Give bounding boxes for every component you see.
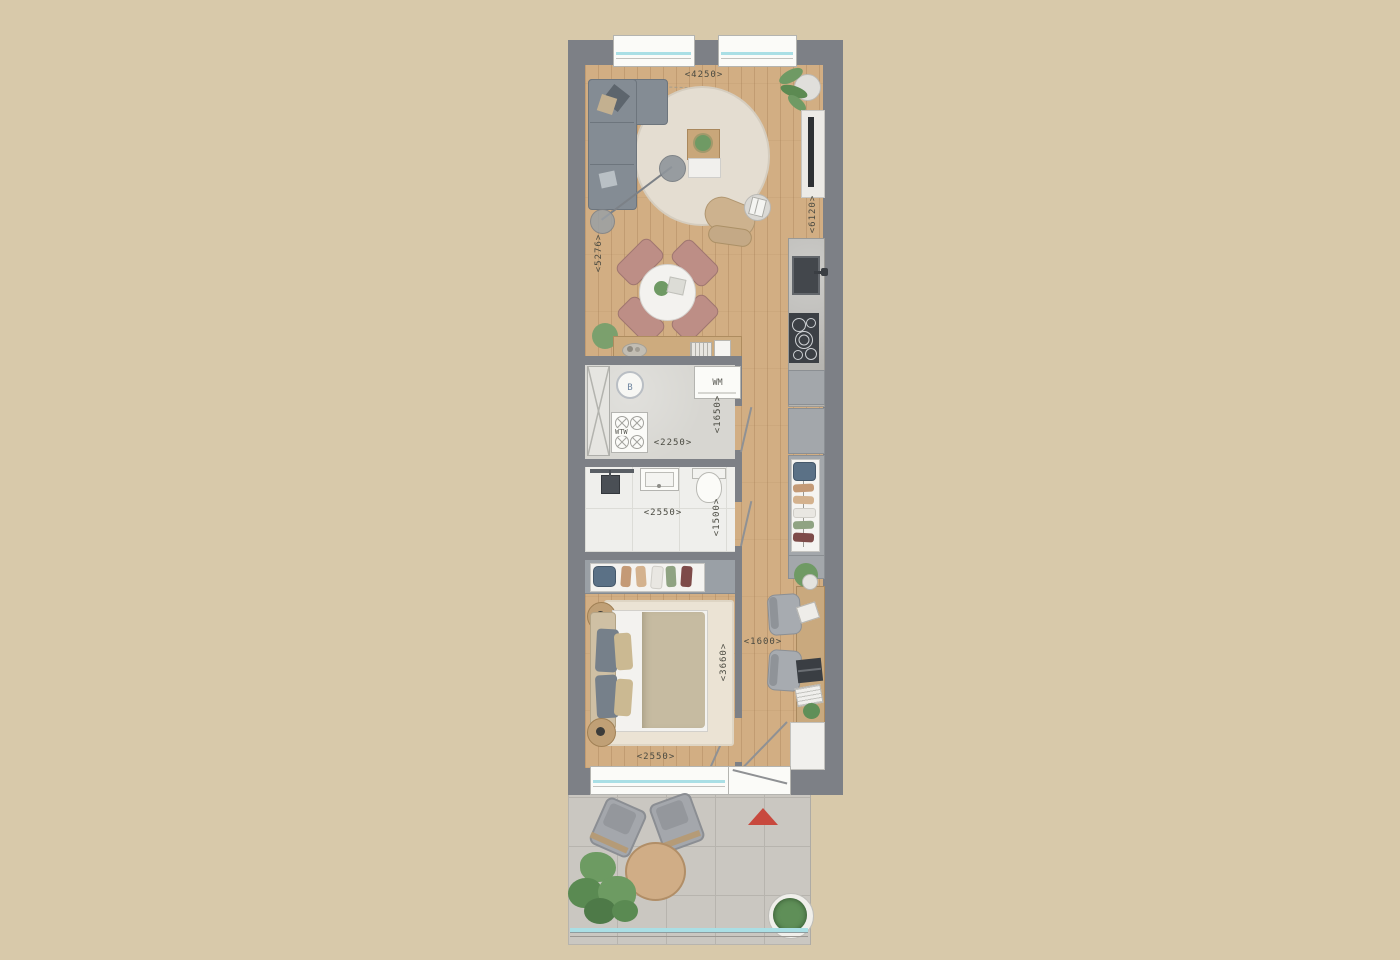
wardrobe-bag-bedroom [593,566,616,587]
bed-pillow-beige [614,632,634,670]
boiler: B [616,371,644,399]
dim-living-width: <4250> [685,70,724,80]
shaft [587,366,610,456]
washing-machine-label: WM [712,378,722,388]
wardrobe-bag [793,462,816,481]
entry-door-recess [790,722,825,770]
window-glass [593,780,725,783]
dining-napkin [667,276,687,295]
cooktop [789,313,819,363]
wall-utility-top [585,356,742,365]
window-glass [721,52,793,55]
shoe-pair-tan [635,566,646,588]
kitchen-tall-cabinet [788,370,825,405]
sofa-cushion-line [590,122,634,123]
bed-pillow-beige [614,678,634,716]
wall-bedroom-hall [735,560,742,718]
dim-bath-height: <1500> [712,498,722,537]
wardrobe-garment-tan [793,496,814,505]
cooktop-burners [789,313,819,363]
wardrobe-garment-green [793,521,814,530]
dim-bedroom-width: <2550> [637,752,676,762]
shower-rail [590,469,634,473]
north-arrow [748,808,778,825]
shoe-pair-maroon [680,566,692,588]
wardrobe-garment-tan [793,483,814,492]
terrace-pot-plant [773,898,807,932]
wall-hall-vert [735,546,742,561]
window-living-left [613,35,695,67]
window-glass [616,52,691,55]
window-frame-line [721,58,793,59]
bedroom-window [590,766,729,795]
terrace-edge-line [570,936,808,937]
sofa-cushion-line [590,164,634,165]
wall-hall-vert [735,450,742,502]
shoe-pair-tan [620,566,631,588]
washing-machine-door-line [698,392,736,394]
dim-living-right: <6120> [808,195,818,234]
nightstand-knob [596,727,605,736]
floor-plan-canvas: B WM WTW <2250> <1650> <2550> <1500> [0,0,1400,960]
sink-tap [657,484,661,488]
dim-bath-width: <2550> [644,508,683,518]
dim-bedroom-height: <3660> [719,643,729,682]
bed-duvet [642,612,705,728]
terrace-glass-balustrade [570,928,808,933]
window-living-right [718,35,797,67]
wardrobe-garment-maroon [793,532,814,542]
tv-screen [808,117,814,187]
shower-hose [609,470,611,478]
kitchen-tall-cabinet [788,408,825,454]
wtw-label: WTW [614,428,629,436]
dim-utility-width: <2250> [654,438,693,448]
coffee-table-plant [695,135,711,151]
dim-utility-height: <1650> [713,395,723,434]
floor-lamp-head [659,155,686,182]
window-frame-line [593,786,725,787]
coffee-table-white [688,158,721,178]
wall-utility-bath [585,459,742,467]
terrace-chair-seat [602,802,637,835]
wtw-unit: WTW [611,412,648,453]
kitchen-faucet-knob [821,268,828,276]
desk-small-plant [803,703,820,719]
window-frame-line [616,58,691,59]
shaft-cross [588,367,609,455]
kitchen-sink [792,256,820,295]
terrace-chair-seat [655,799,690,831]
shoe-pair-green [665,566,676,587]
boiler-label: B [627,383,632,393]
desk-plant-pot [802,574,818,590]
sideboard-stone [627,346,633,352]
shoe-pair-white [650,566,664,590]
floor-lamp-base [590,209,615,234]
sideboard-stone [635,347,640,352]
monstera-leaf [612,900,638,922]
bathroom-sink [640,468,679,491]
dim-hall-width: <1600> [744,637,783,647]
wardrobe-garment-white [793,508,816,518]
dim-living-left: <5276> [594,234,604,273]
